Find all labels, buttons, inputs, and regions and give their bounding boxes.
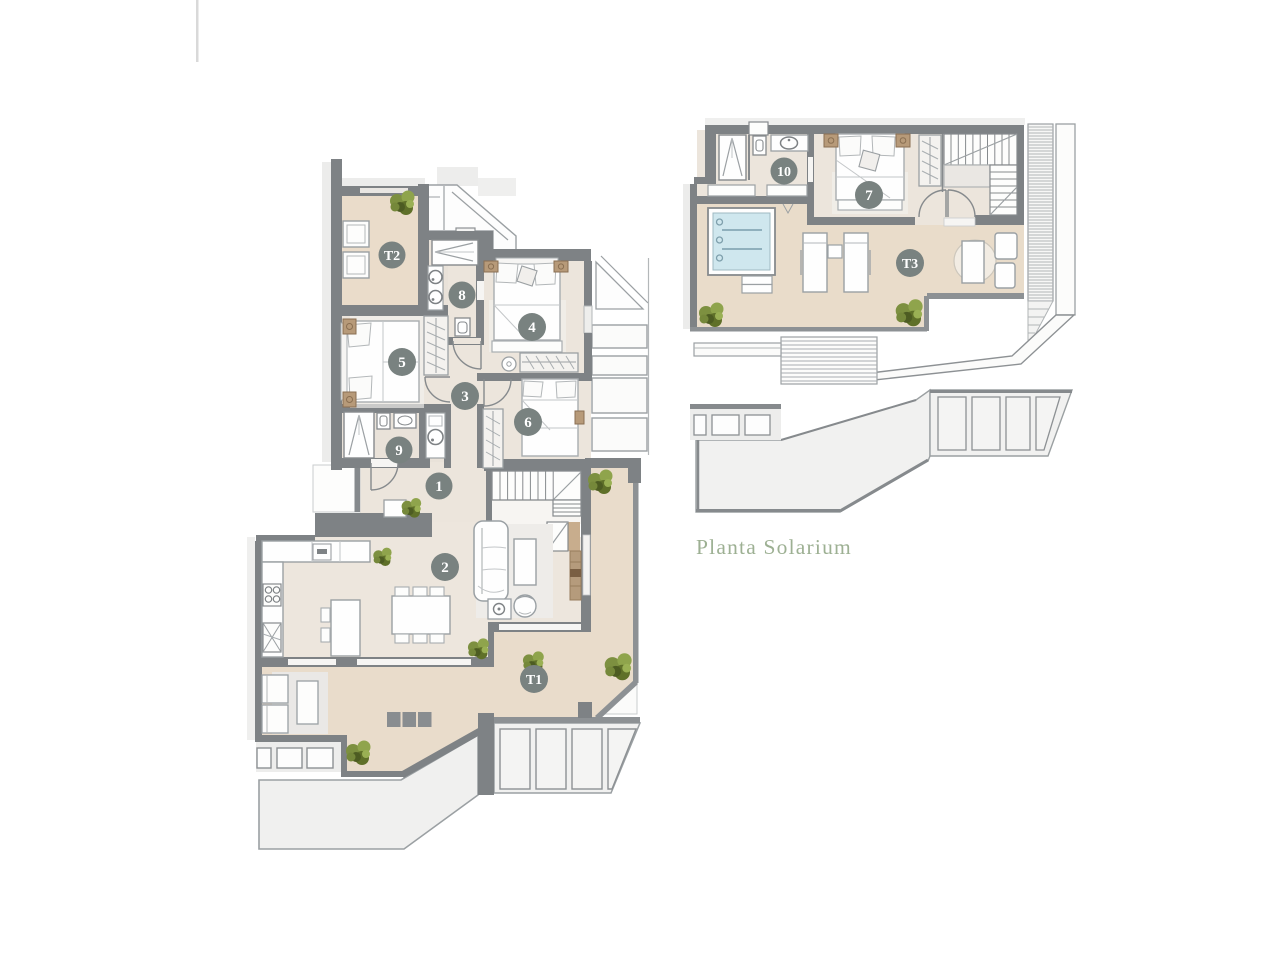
svg-text:10: 10 — [777, 165, 791, 180]
svg-text:2: 2 — [441, 560, 449, 576]
svg-text:4: 4 — [528, 320, 536, 336]
svg-text:T1: T1 — [526, 673, 542, 688]
svg-text:9: 9 — [395, 443, 403, 459]
svg-text:T3: T3 — [902, 257, 918, 272]
svg-text:8: 8 — [458, 288, 466, 304]
svg-text:6: 6 — [524, 415, 532, 431]
svg-text:5: 5 — [398, 355, 406, 371]
svg-text:Planta Solarium: Planta Solarium — [696, 535, 852, 559]
svg-text:7: 7 — [865, 188, 873, 204]
svg-text:1: 1 — [435, 479, 443, 495]
svg-text:T2: T2 — [384, 249, 400, 264]
svg-text:3: 3 — [461, 389, 469, 405]
